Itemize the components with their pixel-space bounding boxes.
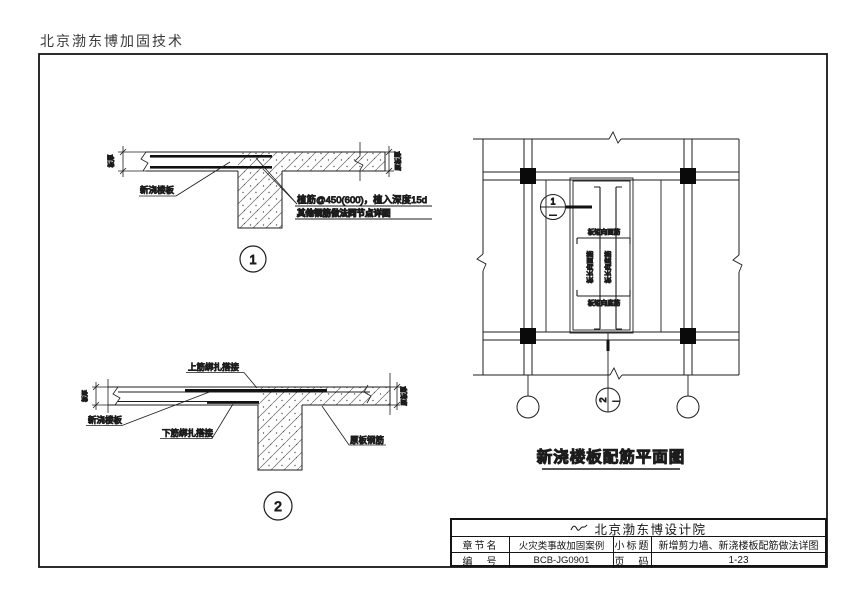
dim-left — [92, 382, 112, 410]
sheet-border — [39, 54, 827, 567]
company-name: 北京渤东博设计院 — [594, 519, 706, 538]
detail-1-section: 板厚 原板厚 新浇楼板 植筋@450(600)，植入深度15d 其他钢筋做法同节… — [106, 142, 432, 272]
bottom-lap-bar — [207, 401, 259, 404]
drawing-sheet: 北京渤东博加固技术 — [0, 0, 863, 609]
dim-left-label: 板厚 — [81, 390, 89, 402]
plan-detail-1-number: 1 — [550, 197, 555, 207]
column-square — [680, 328, 696, 344]
subtitle-value: 新增剪力墙、新浇楼板配筋做法详图 — [652, 537, 825, 552]
long-dir-bar — [594, 187, 600, 329]
title-block: 北京渤东博设计院 章节名 火灾类事故加固案例 小标题 新增剪力墙、新浇楼板配筋做… — [450, 518, 827, 567]
subtitle-label: 小标题 — [614, 537, 652, 552]
top-lap-bar — [185, 389, 327, 392]
page-number: 1-23 — [652, 553, 825, 568]
column-square — [680, 168, 696, 184]
top-lap-label: 上筋绑扎搭接 — [188, 362, 240, 372]
break-symbol — [113, 387, 120, 405]
column-square — [520, 328, 536, 344]
grid-bubble — [677, 396, 699, 418]
plan-view: 板短向面筋 板短向底筋 板长向面筋 板长向底筋 1 — 2 — 新浇楼板配筋平面… — [473, 132, 742, 469]
existing-concrete-hatch — [258, 387, 390, 470]
break-symbol — [141, 152, 148, 171]
short-dir-bar — [577, 238, 630, 244]
title-block-row-1: 章节名 火灾类事故加固案例 小标题 新增剪力墙、新浇楼板配筋做法详图 — [452, 537, 825, 552]
long-dir-bottom-label: 板长向底筋 — [603, 250, 612, 283]
anchor-note-line1: 植筋@450(600)，植入深度15d — [297, 194, 427, 206]
number-label: 编 号 — [452, 553, 510, 568]
dim-left-label: 板厚 — [106, 154, 115, 168]
bottom-rebar-bar — [150, 166, 272, 169]
section-cut-mark — [607, 340, 610, 351]
long-dir-bar — [616, 187, 622, 329]
chapter-value: 火灾类事故加固案例 — [510, 537, 614, 552]
dim-right-label: 原板厚 — [393, 151, 402, 171]
short-dir-top-label: 板短向面筋 — [588, 227, 621, 236]
plan-caption: 新浇楼板配筋平面图 — [537, 447, 686, 466]
top-rebar-bar — [150, 155, 272, 158]
dim-right-label: 原板厚 — [399, 386, 408, 406]
existing-rebar-label: 原板钢筋 — [350, 435, 384, 445]
plan-detail-1-sheet-ref: — — [550, 212, 557, 219]
title-block-row-2: 编 号 BCB-JG0901 页 码 1-23 — [452, 552, 825, 568]
new-slab-label: 新浇楼板 — [140, 185, 175, 195]
section-cut-mark — [566, 206, 592, 209]
new-slab-panel — [570, 178, 633, 333]
plan-section-2-number: 2 — [598, 397, 608, 402]
plan-section-2-sheet-ref: — — [613, 398, 620, 405]
bottom-lap-label: 下筋绑扎搭接 — [162, 428, 214, 438]
short-dir-bar — [577, 290, 630, 296]
long-dir-top-label: 板长向面筋 — [585, 250, 594, 283]
title-block-header: 北京渤东博设计院 — [452, 520, 825, 537]
anchor-note-line2: 其他钢筋做法同节点详图 — [297, 208, 391, 218]
column-square — [520, 168, 536, 184]
design-institute-logo-icon — [570, 523, 588, 533]
drawing-number: BCB-JG0901 — [510, 553, 614, 568]
detail-2-section: 板厚 原板厚 上筋绑扎搭接 新浇楼板 下筋绑扎搭接 原板钢筋 2 — [81, 362, 408, 520]
detail-2-number: 2 — [274, 498, 282, 514]
page-label: 页 码 — [614, 553, 652, 568]
new-slab-label: 新浇楼板 — [88, 415, 123, 425]
grid-bubble — [517, 396, 539, 418]
chapter-label: 章节名 — [452, 537, 510, 552]
short-dir-bottom-label: 板短向底筋 — [588, 298, 621, 307]
detail-1-number: 1 — [249, 252, 256, 267]
